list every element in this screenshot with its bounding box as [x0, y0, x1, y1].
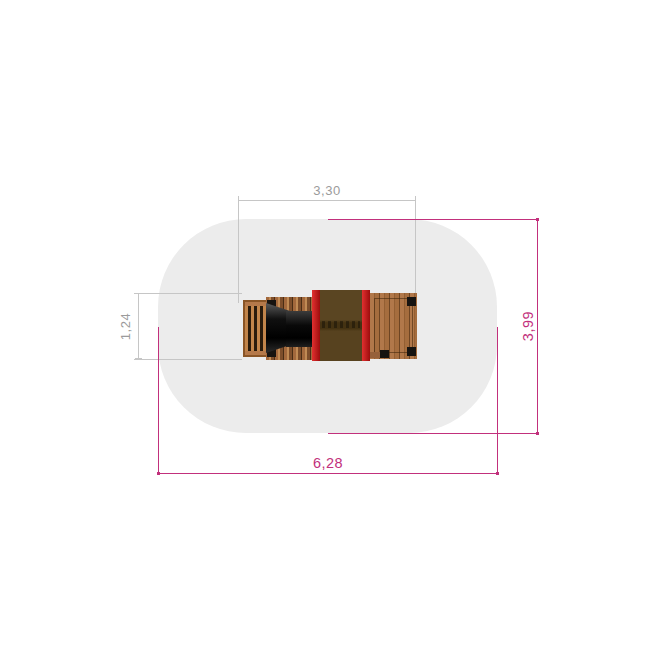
dim-399-label: 3,99	[520, 296, 536, 356]
plan-view-canvas: 3,30 1,24 6,28 3,99	[0, 0, 660, 660]
dim-124-extension-top	[134, 293, 242, 294]
tower-red-band-right	[362, 290, 370, 361]
dim-330-line	[238, 200, 416, 201]
dim-628-extension-left	[158, 327, 159, 473]
dim-330-label: 3,30	[238, 183, 416, 198]
dim-124-label: 1,24	[118, 301, 133, 353]
corner-post-platform-bottom-mid	[380, 350, 389, 358]
dim-330-extension-left	[238, 196, 239, 303]
dim-628-label: 6,28	[158, 455, 498, 471]
dim-628-extension-right	[497, 327, 498, 473]
dim-330-extension-right	[415, 196, 416, 298]
corner-post-platform-top-right	[407, 297, 416, 306]
dim-399-extension-bottom	[328, 433, 538, 434]
dim-399-line	[537, 219, 538, 434]
tower-red-band-left	[312, 290, 320, 361]
dim-399-extension-top	[328, 219, 538, 220]
dim-124-line	[138, 293, 139, 359]
corner-post-platform-bottom-right	[407, 347, 416, 356]
access-ladder	[243, 300, 268, 357]
dim-628-line	[158, 473, 498, 474]
dim-124-extension-bottom	[134, 359, 242, 360]
tower-roof-panel	[320, 290, 362, 361]
